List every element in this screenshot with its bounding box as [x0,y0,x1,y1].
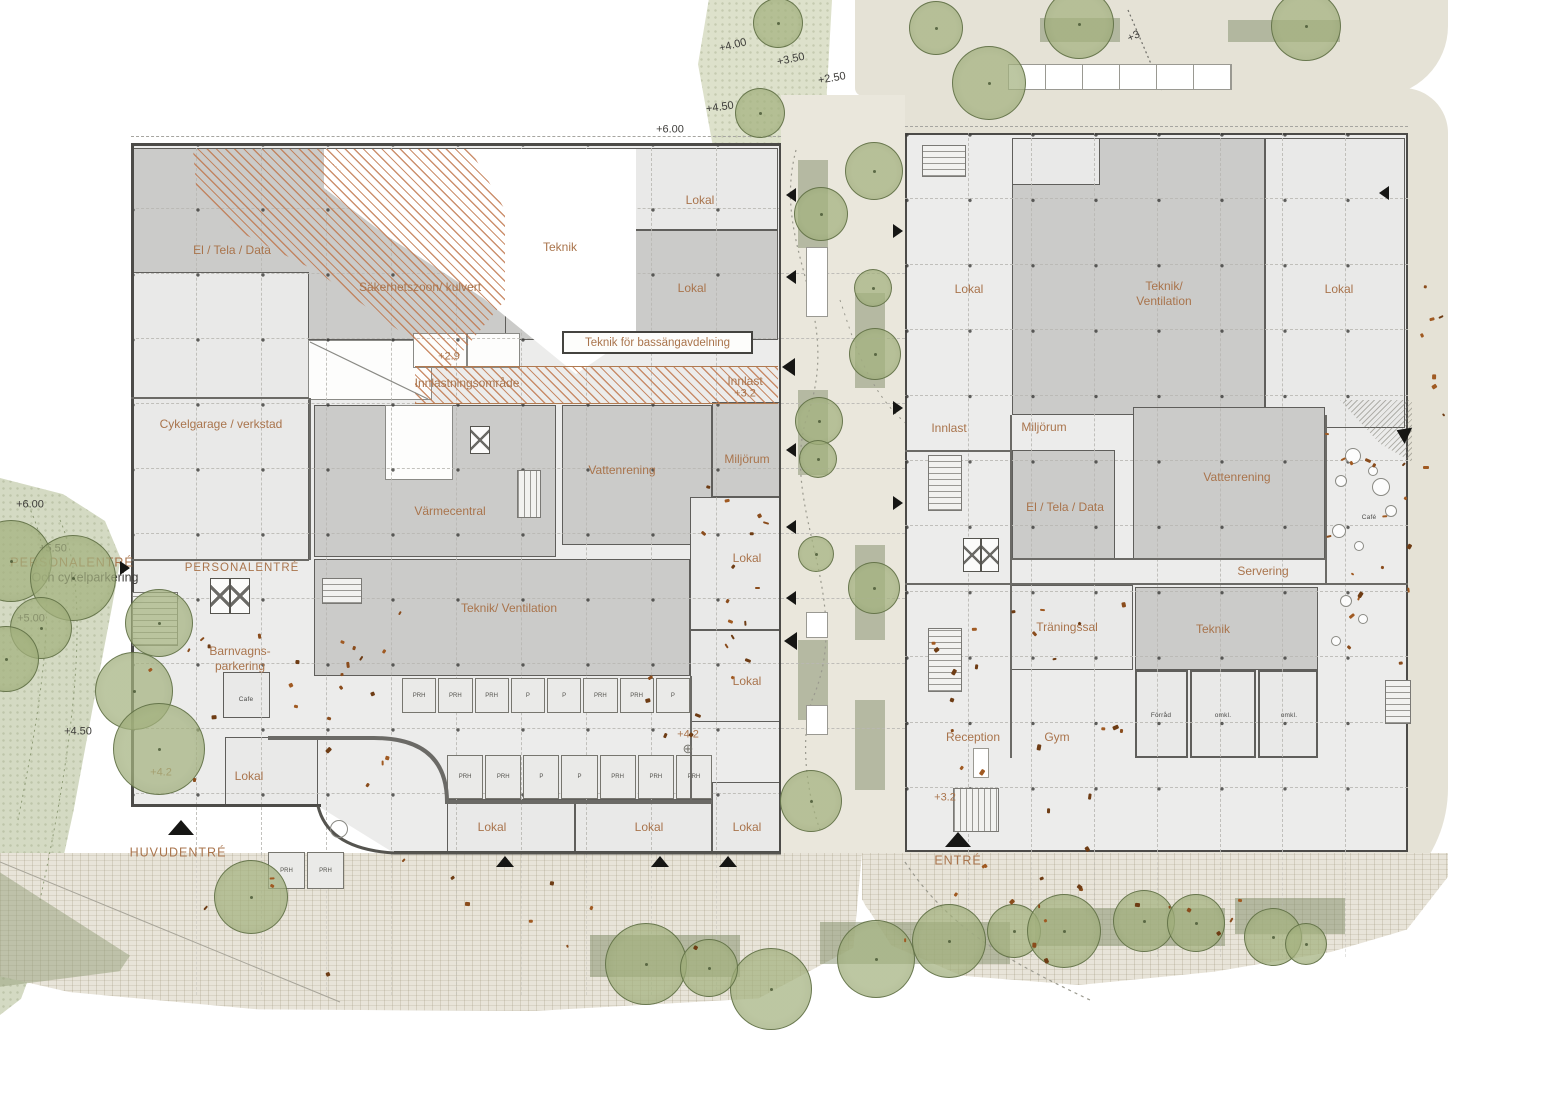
label-teknik-ventilation-left: Teknik/ Ventilation [461,601,557,615]
site-plan-canvas: PRHPRHPRHPPPRHPRHP PRHPRHPPPRHPRHPRH PRH… [0,0,1556,1100]
label-teknik-vent-1: Teknik/ [1145,279,1182,293]
leaf-scatter-mark [207,645,210,649]
label-miljorum-right: Miljörum [1021,420,1066,434]
level-target-icon: ⊕ [683,741,694,757]
label-teknik-left: Teknik [543,240,577,254]
leaf-scatter-mark [1033,943,1037,948]
tree [854,269,892,307]
entrance-triangle [719,856,737,867]
label-teknik-right: Teknik [1196,622,1230,636]
cafe-table [1335,475,1347,487]
label-teknik-vent-2: Ventilation [1136,294,1191,308]
label-lokal-s1: Lokal [478,820,507,834]
label-level-left-1: +6.00 [16,498,44,511]
facade-arrow-icon [784,632,797,650]
tree [125,589,193,657]
label-reception: Reception [946,730,1000,744]
leaf-scatter-mark [1088,793,1092,799]
entrance-triangle-huvudentre [168,820,194,835]
label-lokal-n2: Lokal [678,281,707,295]
label-barnvagn-2: parkering [215,659,265,673]
label-cykelgarage: Cykelgarage / verkstad [160,417,283,431]
tree [794,187,848,241]
leaf-scatter-mark [258,633,261,639]
label-sakerhetszon: Säkerhetszoon/ kulvert [359,280,481,294]
leaf-scatter-mark [744,620,746,625]
label-level-top-5: +6.00 [656,123,684,136]
label-el-tela-data-right: El / Tela / Data [1026,500,1104,514]
label-el-tela-data: El / Tela / Data [193,243,271,257]
tree [1113,890,1175,952]
tree [912,904,986,978]
tree [214,860,288,934]
label-dock-level: +2.9 [438,350,460,363]
leaf-scatter-mark [1381,565,1385,568]
label-lokal-s2: Lokal [635,820,664,834]
label-gym: Gym [1044,730,1069,744]
label-traningssal: Träningssal [1036,620,1098,634]
facade-arrow-icon [786,591,796,605]
cafe-table [1332,524,1346,538]
label-varmecentral: Värmecentral [414,504,485,518]
label-lokal-e2: Lokal [733,674,762,688]
tree [837,920,915,998]
cafe-table [1358,614,1368,624]
label-omkl-2: omkl. [1281,712,1298,720]
label-entrance-level-right: +3.2 [934,791,956,804]
facade-arrow-icon [1379,186,1389,200]
label-level-left-4: +4.50 [64,725,92,738]
tree [795,397,843,445]
label-lokal-nw: Lokal [955,282,984,296]
leaf-scatter-mark [1423,466,1429,469]
tree [1167,894,1225,952]
tree [798,536,834,572]
tree [799,440,837,478]
label-lokal-s3: Lokal [733,820,762,834]
label-lokal-ne: Lokal [1325,282,1354,296]
leaf-scatter-mark [1382,515,1387,518]
facade-arrow-icon [782,358,795,376]
label-huvudentre: HUVUDENTRÉ [130,846,227,861]
leaf-scatter-mark [750,532,754,536]
leaf-scatter-mark [212,715,217,720]
tree [845,142,903,200]
tree [909,1,963,55]
label-innlast-right: Innlast [931,421,966,435]
leaf-scatter-mark [1134,902,1140,906]
tree [848,562,900,614]
revolving-door [330,820,348,838]
entrance-triangle [496,856,514,867]
leaf-scatter-mark [295,660,300,665]
teknik-bassang-box: Teknik för bassängavdelning [562,331,753,354]
leaf-scatter-mark [1433,374,1437,379]
leaf-scatter-mark [904,938,906,942]
label-entre: ENTRÉ [934,854,981,869]
facade-arrow-icon [786,443,796,457]
label-cafe-left: Cafe [239,696,254,704]
label-innlast-zone: Innlastningsområde [415,376,520,390]
leaf-scatter-mark [193,778,196,782]
tree [1285,923,1327,965]
tree [680,939,738,997]
prh-cell: PRH [307,852,344,889]
label-omkl-1: omkl. [1215,712,1232,720]
label-vattenrening-right: Vattenrening [1203,470,1270,484]
tree [113,703,205,795]
tree [952,46,1026,120]
label-lokal-e1: Lokal [733,551,762,565]
label-innlast-left: Innlast [727,374,762,388]
label-miljorum-left: Miljörum [724,452,769,466]
leaf-scatter-mark [932,642,936,645]
tree [780,770,842,832]
leaf-scatter-mark [465,902,470,907]
facade-arrow-icon [893,401,903,415]
entrance-triangle-entre [945,832,971,847]
label-barnvagn-1: Barnvagns- [209,644,270,658]
leaf-scatter-mark [757,513,762,518]
facade-arrow-icon [893,224,903,238]
cafe-table [1340,595,1352,607]
cafe-table [1345,448,1361,464]
cafe-table [1354,541,1364,551]
facade-arrow-icon [893,496,903,510]
leaf-scatter-mark [270,877,275,880]
label-servering: Servering [1237,564,1288,578]
leaf-scatter-mark [974,664,978,669]
tree [735,88,785,138]
teknik-bassang-label: Teknik för bassängavdelning [585,337,730,349]
label-personalentre-inner: PERSONALENTRÉ [185,562,300,576]
tree [730,948,812,1030]
leaf-scatter-mark [971,628,976,631]
tree [753,0,803,48]
tree [849,328,901,380]
leaf-scatter-mark [706,485,710,489]
entrance-arrow-personalentre [120,561,130,575]
label-cafe-right: Café [1362,514,1377,522]
facade-arrow-icon [786,188,796,202]
facade-arrow-icon [786,520,796,534]
label-vattenrening-left: Vattenrening [588,463,655,477]
cafe-table [1372,478,1390,496]
label-forrad: Förråd [1151,712,1171,720]
tree [605,923,687,1005]
leaf-scatter-mark [382,760,384,765]
leaf-scatter-mark [1102,727,1106,730]
cafe-table [1331,636,1341,646]
entrance-triangle [651,856,669,867]
label-innlast-level: +3.2 [734,387,756,400]
label-lokal-sw: Lokal [235,769,264,783]
label-lokal-n1: Lokal [686,193,715,207]
facade-arrow-icon [786,270,796,284]
